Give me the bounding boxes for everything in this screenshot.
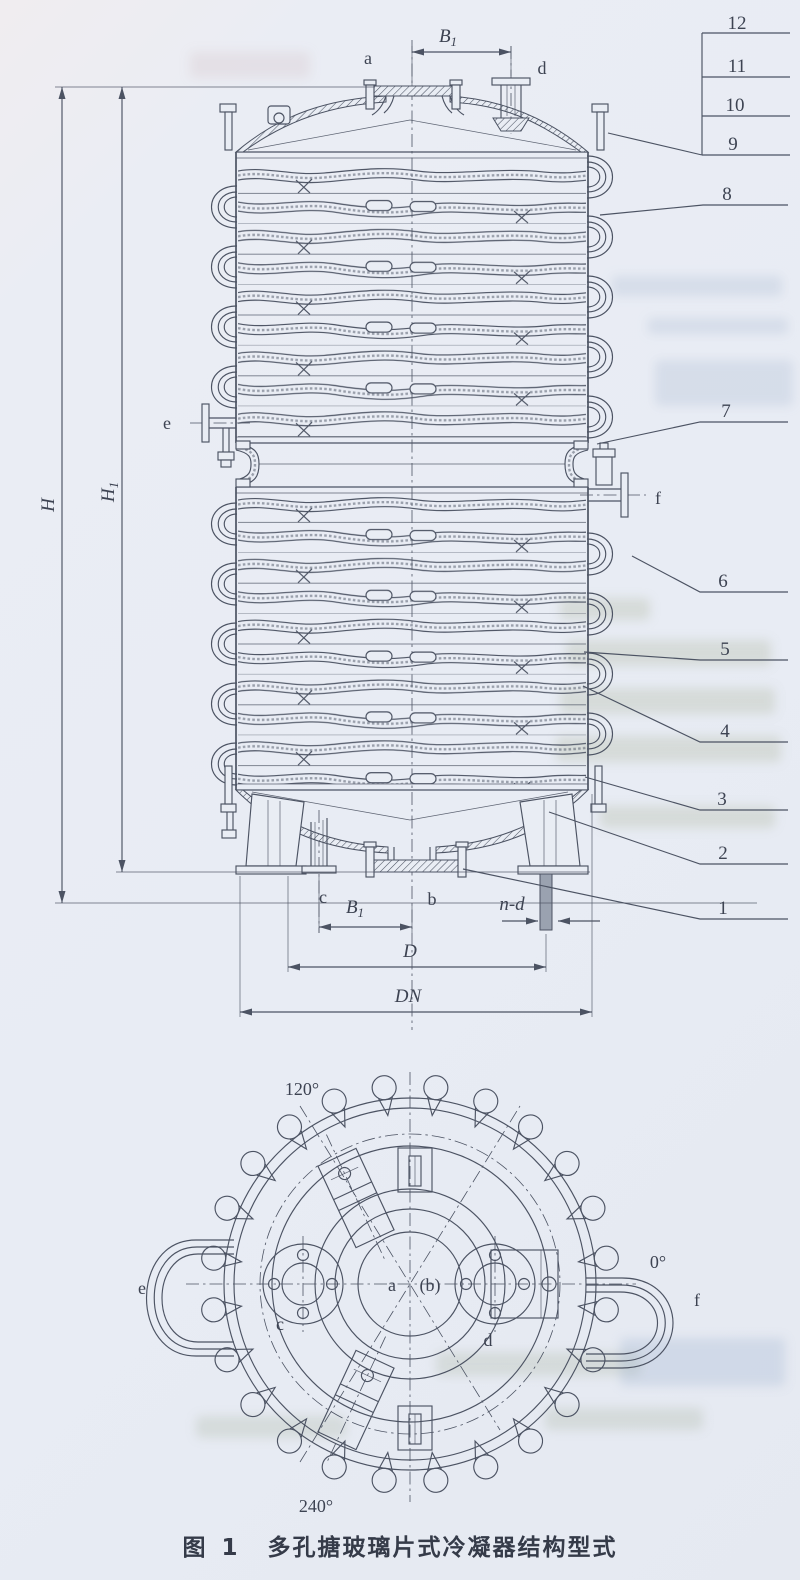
- dim-dn-label: DN: [394, 986, 423, 1007]
- nozzle-b-label: b: [428, 889, 437, 909]
- dimension-b1-top: B1: [412, 26, 511, 86]
- plan-label-c: c: [276, 1314, 284, 1334]
- plan-120deg-axis: [300, 1106, 500, 1430]
- plan-label-b: (b): [420, 1275, 441, 1296]
- top-head: [220, 96, 608, 152]
- dim-h1-label: H1: [98, 482, 121, 503]
- angle-240-label: 240°: [299, 1496, 333, 1516]
- callout-9: 9: [728, 134, 738, 155]
- plan-top-bracket: [398, 1148, 432, 1192]
- plate-stack-lower: [238, 492, 586, 784]
- plan-view: 120° 0° 240° a (b) c d e f: [138, 1072, 700, 1516]
- mid-section-joint: [236, 441, 615, 487]
- angle-120-label: 120°: [285, 1079, 319, 1099]
- angle-0-label: 0°: [650, 1252, 666, 1272]
- elevation-view: B1 H H1 B1 n-d D DN a: [38, 13, 790, 1030]
- dim-h-label: H: [38, 497, 59, 513]
- nozzle-a-label: a: [364, 48, 372, 68]
- callout-5: 5: [720, 639, 730, 660]
- dimension-b1-bottom: B1: [319, 876, 412, 933]
- callout-8: 8: [722, 184, 732, 205]
- nozzle-e: [202, 404, 236, 467]
- figure-title: 多孔搪玻璃片式冷凝器结构型式: [268, 1535, 618, 1561]
- dim-d-label: D: [402, 941, 417, 962]
- plan-label-a: a: [388, 1275, 396, 1295]
- callout-4: 4: [720, 721, 730, 742]
- loop-e: [147, 1240, 235, 1356]
- callout-10: 10: [726, 95, 745, 116]
- dim-nd-label: n-d: [499, 894, 525, 915]
- callout-12: 12: [728, 13, 747, 34]
- dim-b1-bottom-label: B1: [346, 897, 364, 920]
- callout-1: 1: [718, 898, 728, 919]
- plan-leg-240: [307, 1328, 404, 1473]
- condenser-structure-drawing: B1 H H1 B1 n-d D DN a: [0, 0, 800, 1580]
- callout-11: 11: [728, 56, 746, 77]
- callout-6: 6: [718, 571, 728, 592]
- nozzle-c-label: c: [319, 887, 327, 907]
- support-leg-left: [236, 794, 306, 874]
- nozzle-d-label: d: [538, 58, 547, 78]
- figure-number: 图 1: [182, 1535, 241, 1561]
- plate-stack-upper: [238, 163, 586, 437]
- callout-ladder: 12 11 10 9: [608, 13, 790, 155]
- dim-b1-top-label: B1: [439, 26, 457, 49]
- support-leg-right: [518, 794, 588, 930]
- anchor-bolt: [540, 874, 552, 930]
- plan-label-d: d: [484, 1330, 493, 1350]
- figure-caption: 图 1多孔搪玻璃片式冷凝器结构型式: [0, 1528, 800, 1562]
- scanned-technical-figure-page: B1 H H1 B1 n-d D DN a: [0, 0, 800, 1580]
- plan-label-f: f: [694, 1290, 700, 1310]
- callout-3: 3: [717, 789, 727, 810]
- callout-7: 7: [721, 401, 731, 422]
- plan-label-e: e: [138, 1278, 146, 1298]
- nozzle-f-label: f: [655, 488, 661, 508]
- callout-2: 2: [718, 843, 728, 864]
- plan-bottom-bracket: [398, 1406, 432, 1450]
- nozzle-e-label: e: [163, 413, 171, 433]
